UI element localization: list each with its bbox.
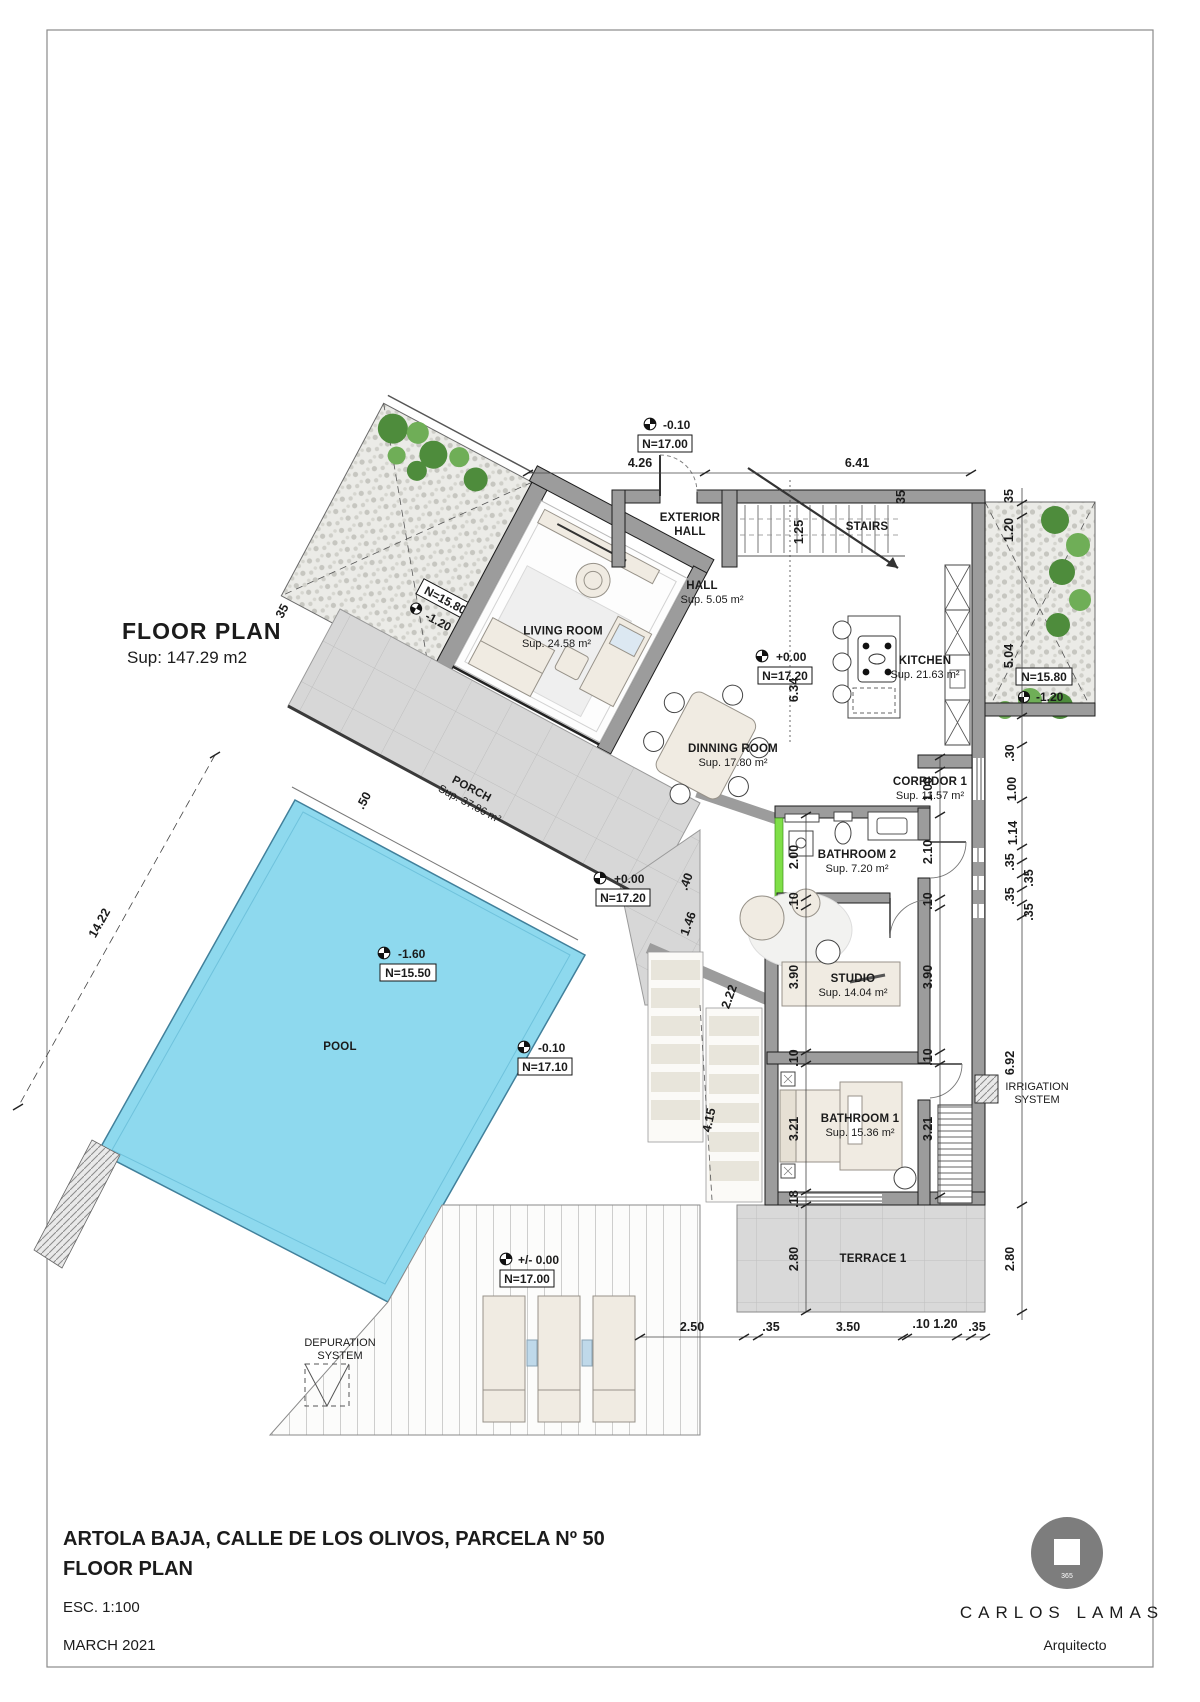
dim-b1: 2.50 [680,1320,704,1334]
dim-l1: 2.00 [787,845,801,869]
drawing-date: MARCH 2021 [63,1637,156,1654]
level-hall-mid: +0.00 N=17.20 [594,872,650,906]
dim-r12: 2.80 [1003,1247,1017,1271]
level-deck-value: +/- 0.00 [518,1253,559,1267]
dim-l3: 3.90 [787,965,801,989]
dim-c5: .10 [921,1048,935,1065]
level-deck: +/- 0.00 N=17.00 [500,1253,559,1287]
level-pool-ref: N=15.50 [385,966,431,980]
dim-top-b: 6.41 [845,456,869,470]
toilet-tank [834,812,852,821]
side-table [582,1340,592,1366]
hall-label: HALL [686,580,717,592]
wall-garden-right-bottom [985,703,1095,716]
level-pool-value: -1.60 [398,947,426,961]
dim-mid: 6.34 [787,678,801,702]
dim-b5: .35 [968,1320,985,1334]
architect-name: CARLOS LAMAS [960,1603,1164,1622]
plan-area: Sup: 147.29 m2 [127,648,247,667]
drawing-sheet: N=15.80 -1.20 5.29 35 35 LIVING ROOM [0,0,1200,1697]
dim-l7: 2.80 [787,1247,801,1271]
bathroom2-label: BATHROOM 2 [818,849,896,861]
level-entry-ref: N=17.00 [642,437,688,451]
studio-area: Sup. 14.04 m² [818,987,887,999]
level-decklow-ref: N=17.10 [522,1060,568,1074]
stool [833,685,851,703]
depuration-label-2: SYSTEM [317,1350,362,1362]
level-hallmid-value: +0.00 [614,872,645,886]
stool [833,621,851,639]
dim-c6: 3.21 [921,1117,935,1141]
dim-stairw: 1.25 [792,520,806,544]
level-entry: -0.10 N=17.00 [638,418,692,452]
dim-wall35: 35 [894,490,908,504]
terrace-door [790,1194,882,1203]
floor-plan-canvas: N=15.80 -1.20 5.29 35 35 LIVING ROOM [0,0,1200,1697]
studio-label: STUDIO [831,973,876,985]
dim-r5: 1.00 [1005,777,1019,801]
depuration-label-1: DEPURATION [304,1337,375,1349]
drawing-name: FLOOR PLAN [63,1558,193,1580]
level-deck-low: -0.10 N=17.10 [518,1041,572,1075]
level-main-ref: N=17.20 [762,669,808,683]
dim-l2: .10 [787,892,801,909]
bathroom1-label: BATHROOM 1 [821,1113,900,1125]
pool-label: POOL [323,1041,356,1053]
logo-square-icon [1054,1539,1080,1565]
logo-number: 365 [1061,1573,1073,1580]
dim-l6: .18 [787,1190,801,1207]
plan-title: FLOOR PLAN [122,618,282,644]
dim-l4: .10 [787,1049,801,1066]
level-deck-ref: N=17.00 [504,1272,550,1286]
dim-b4: .10 1.20 [912,1317,957,1331]
dim-r1: 35 [1002,489,1016,503]
level-entry-value: -0.10 [663,418,691,432]
dim-c2: 2.10 [921,840,935,864]
dim-c1: 1.00 [921,777,935,801]
dim-r11: 6.92 [1003,1051,1017,1075]
dim-c3: .10 [921,892,935,909]
exterior-hall-label-2: HALL [674,526,705,538]
project-address: ARTOLA BAJA, CALLE DE LOS OLIVOS, PARCEL… [63,1528,605,1550]
dinning-label: DINNING ROOM [688,743,778,755]
accent-green-wall [775,818,783,898]
sunbeds [483,1296,635,1422]
hall-area: Sup. 5.05 m² [681,594,744,606]
dim-r3: 5.04 [1002,644,1016,668]
dim-r9: .35 [1003,887,1017,904]
sink-counter [868,812,918,840]
irrigation-box [975,1075,998,1103]
level-gr-value: -1.20 [1036,690,1064,704]
bathroom2-area: Sup. 7.20 m² [826,863,889,875]
level-main: +0.00 N=17.20 [756,650,812,684]
stool-round [894,1167,916,1189]
stool [833,653,851,671]
drawing-scale: ESC. 1:100 [63,1599,140,1616]
toilet [835,822,851,844]
level-hallmid-ref: N=17.20 [600,891,646,905]
dinning-area: Sup. 17.80 m² [698,757,767,769]
dim-r6: 1.14 [1006,821,1020,845]
dim-r10: .35 [1022,903,1036,920]
irrigation-label-2: SYSTEM [1014,1094,1059,1106]
stairs-label: STAIRS [846,521,889,533]
irrigation-label-1: IRRIGATION [1005,1081,1068,1093]
kitchen-area: Sup. 21.63 m² [890,669,959,681]
living-area: Sup. 24.58 m² [522,638,591,650]
exterior-hall-label-1: EXTERIOR [660,512,721,524]
terrace-label: TERRACE 1 [840,1253,907,1265]
living-label: LIVING ROOM [523,626,603,638]
side-table [527,1340,537,1366]
terrace-1: TERRACE 1 [737,1205,985,1312]
bathroom1-area: Sup. 15.36 m² [825,1127,894,1139]
dim-l5: 3.21 [787,1117,801,1141]
dim-r8: .35 [1022,869,1036,886]
dim-b3: 3.50 [836,1320,860,1334]
dim-top-a: 4.26 [628,456,652,470]
desk-chair [816,940,840,964]
dim-r7: .35 [1003,853,1017,870]
wardrobe [938,1105,972,1203]
level-decklow-value: -0.10 [538,1041,566,1055]
lounge-chair [740,896,784,940]
level-main-value: +0.00 [776,650,807,664]
kitchen-label: KITCHEN [899,655,952,667]
dim-r4: .30 [1003,744,1017,761]
level-gr-ref: N=15.80 [1021,670,1067,684]
dim-c4: 3.90 [921,965,935,989]
dim-r2: 1.20 [1002,518,1016,542]
dim-b2: .35 [762,1320,779,1334]
architect-role: Arquitecto [1043,1637,1106,1653]
kitchen-island [833,616,900,718]
